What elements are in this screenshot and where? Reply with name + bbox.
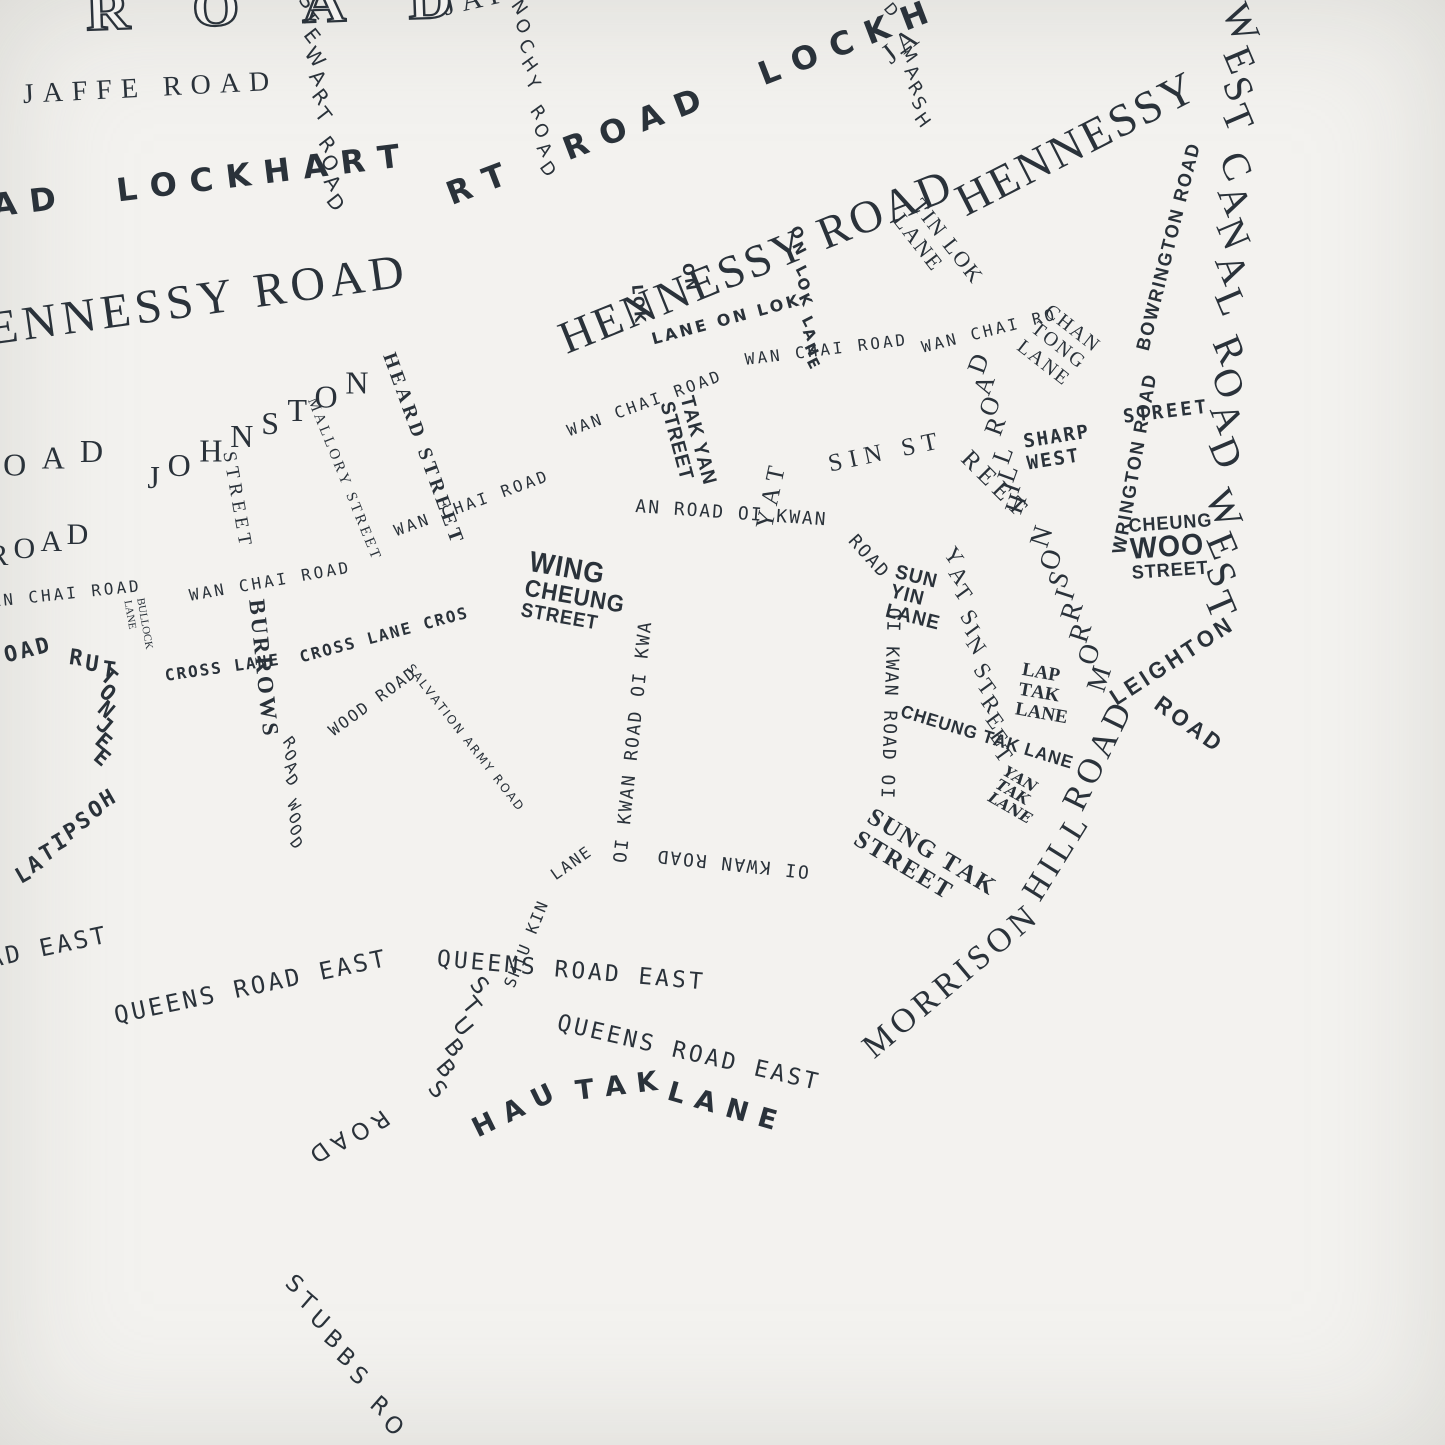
ruttonjee-hospital-road: TONJEE — [91, 672, 122, 771]
on-lok-lane: ON — [679, 262, 699, 294]
bullock-lane: BULLOCKLANE — [121, 597, 155, 653]
bowrington-road: BOWRINGTON ROAD — [1134, 140, 1205, 352]
sharp-street-west: SHARPWEST — [1022, 421, 1095, 475]
oi-kwan-road: OI KWAN ROAD OI — [877, 607, 902, 800]
wan-chai-road: WAN CHAI ROAD — [744, 332, 909, 369]
ruttonjee-hospital-road: HOSPITAL — [14, 789, 126, 893]
hennessy-road: ENNESSY ROAD — [0, 246, 412, 354]
ruttonjee-hospital-road: OAD — [2, 634, 55, 668]
oi-kwan-road: AN ROAD OI KWAN — [635, 498, 828, 530]
morrison-hill-road: MORRISON — [856, 897, 1047, 1065]
wan-chai-road: WAN CHAI ROAD — [188, 559, 353, 604]
tak-yan-street: TAK YANSTREET — [655, 394, 719, 493]
sun-yin-lane: SUNYINLANE — [883, 562, 951, 634]
yan-tak-lane: YANTAKLANE — [986, 764, 1050, 827]
salvation-army-road: SALVATION ARMY ROAD — [404, 662, 527, 814]
wood-road: ROAD WOOD — [281, 738, 306, 853]
wing-cheung-street: WINGCHEUNGSTREET — [519, 548, 631, 637]
hennessy-road: HENNESSY — [948, 62, 1205, 225]
sung-tak-street: SUNG TAKSTREET — [849, 804, 1001, 924]
leighton-road: ROAD — [1150, 692, 1228, 758]
oi-kwan-road: ROAD — [844, 532, 892, 583]
wood-road: WOOD ROAD — [326, 664, 420, 739]
yat-sin-street: SIN ST — [826, 428, 947, 478]
shiu-kin-lane: LANE — [548, 843, 596, 883]
marsh-road: MARSH — [898, 46, 934, 133]
hau-tak-lane: LANE — [664, 1078, 790, 1139]
lockhart-road: AD LOCKHART — [0, 138, 414, 223]
typographic-map: ROADJAFFE ROADJAFFE ROJASTEWART ROADNOCH… — [0, 0, 1445, 1445]
queens-road-east: QUEENS ROAD EAST — [112, 946, 390, 1028]
hau-tak-lane: HAU — [468, 1075, 569, 1143]
jaffe-road: JAFFE ROAD — [22, 67, 279, 109]
cross-lane: CROSS LANE CROS — [298, 605, 471, 666]
photo-of-typographic-map: { "palette": { "paper": "#f3f2ef", "pape… — [0, 0, 1445, 1445]
queens-road-east: AD EAST — [0, 923, 111, 973]
johnston-road: OAD — [0, 432, 121, 485]
mallory-street: MALLORY STREET — [304, 396, 384, 564]
stubbs-road: ROAD — [300, 1105, 392, 1169]
oi-kwan-road: OI KWAN ROAD — [655, 845, 810, 880]
hau-tak-lane: TAK — [574, 1067, 670, 1106]
stubbs-road: STUBBS — [424, 977, 496, 1110]
wan-chai-road: WAN CHAI ROAD — [392, 468, 552, 540]
oi-kwan-road: OI KWAN ROAD OI KWA — [612, 619, 656, 864]
johnston-road: ROAD — [0, 516, 97, 574]
on-lok-lane: LOK — [628, 284, 647, 325]
burrows-street: STREET — [219, 450, 256, 552]
stubbs-road: STUBBS RO — [280, 1272, 412, 1445]
lap-tak-lane: LAPTAKLANE — [1014, 660, 1076, 729]
canal-road-west: WEST CANAL ROAD WEST — [1201, 5, 1264, 625]
